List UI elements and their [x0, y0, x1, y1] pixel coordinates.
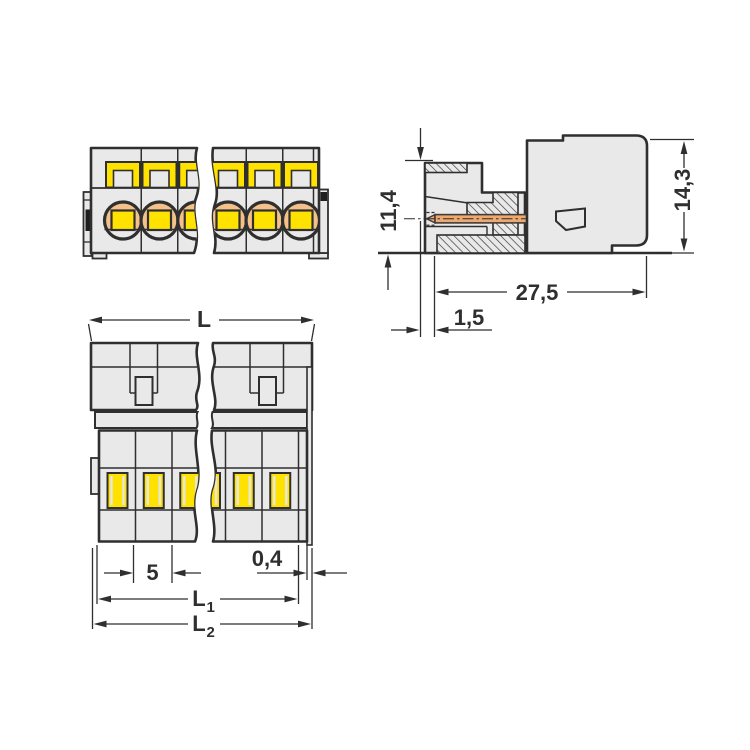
dim-label-overall-depth: 27,5	[516, 280, 559, 305]
dim-label-l1-sub: 1	[207, 599, 215, 616]
lever-opening	[270, 473, 290, 508]
dim-label-total-length: L	[197, 306, 211, 332]
dim-label-housing-height: 14,3	[670, 169, 695, 212]
dim-label-plug-height: 11,4	[376, 189, 401, 231]
housing-side-outline	[527, 136, 647, 254]
front-poles-right	[210, 149, 320, 253]
middle-strip-left	[95, 412, 198, 428]
dim-label-pin-spacing: 5	[146, 560, 158, 585]
hatch-bottom	[437, 235, 525, 253]
lever-opening	[144, 473, 164, 508]
lever-opening	[234, 473, 254, 508]
dim-label-l1-base: L	[192, 586, 205, 611]
bracket-notch	[321, 192, 328, 201]
dim-label-pin-setback: 1,5	[454, 305, 485, 330]
mounting-bracket-right	[319, 190, 328, 254]
hatch-top	[425, 163, 467, 173]
technical-drawing-page: 11,4 14,3 27,5 1,5	[0, 0, 750, 750]
dim-label-l2-sub: 2	[207, 624, 215, 641]
bracket-slot	[86, 210, 91, 232]
technical-drawing-canvas: 11,4 14,3 27,5 1,5	[0, 0, 750, 750]
lever-opening	[108, 473, 128, 508]
dim-label-l2-base: L	[192, 611, 205, 636]
dim-label-wall-thickness: 0,4	[252, 546, 283, 571]
middle-strip-right	[212, 412, 307, 428]
